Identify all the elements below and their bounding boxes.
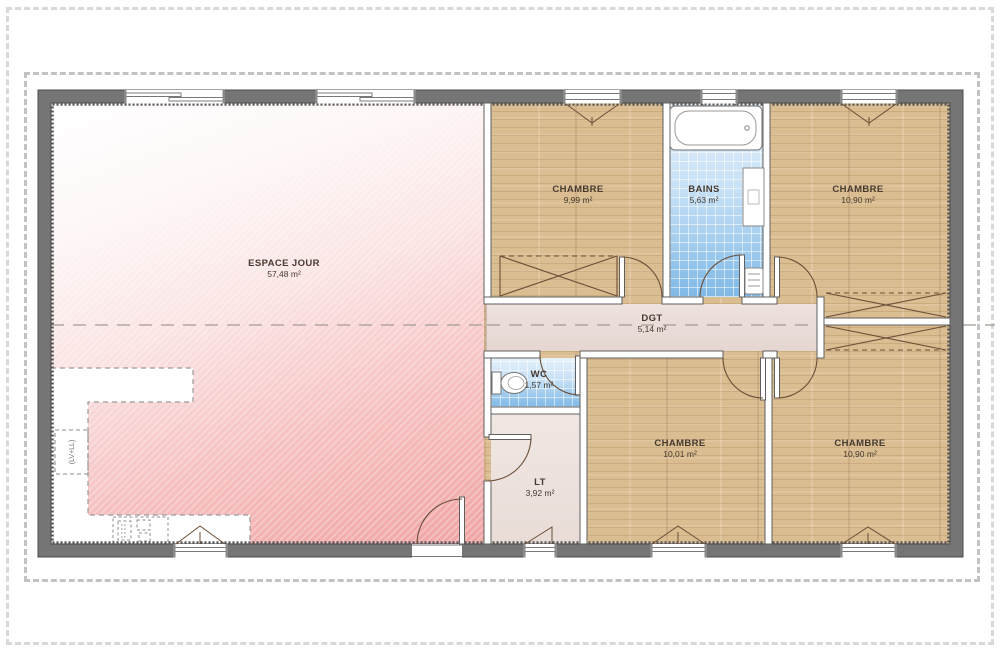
plan-linework: (LV+LL) (0, 0, 1000, 650)
room-label-dgt: DGT 5,14 m² (638, 313, 667, 334)
room-label-lt: LT 3,92 m² (526, 477, 555, 498)
room-label-chambre-3: CHAMBRE 10,01 m² (654, 438, 705, 459)
room-label-wc: WC 1,57 m² (525, 369, 554, 390)
kitchen-note-text: (LV+LL) (69, 440, 76, 465)
bathtub (670, 106, 762, 150)
room-label-chambre-2: CHAMBRE 10,90 m² (832, 184, 883, 205)
room-label-chambre-1: CHAMBRE 9,99 m² (552, 184, 603, 205)
room-label-bains: BAINS 5,63 m² (688, 184, 720, 205)
bathroom-vanity (743, 168, 764, 226)
room-label-chambre-4: CHAMBRE 10,90 m² (834, 438, 885, 459)
kitchen-counter-zone (51, 368, 250, 544)
towel-rail (745, 268, 763, 294)
wc-toilet (492, 372, 527, 394)
room-label-espace-jour: ESPACE JOUR 57,48 m² (248, 258, 320, 279)
floor-plan: (LV+LL) (0, 0, 1000, 650)
wall-insulation-liner (53, 105, 949, 543)
